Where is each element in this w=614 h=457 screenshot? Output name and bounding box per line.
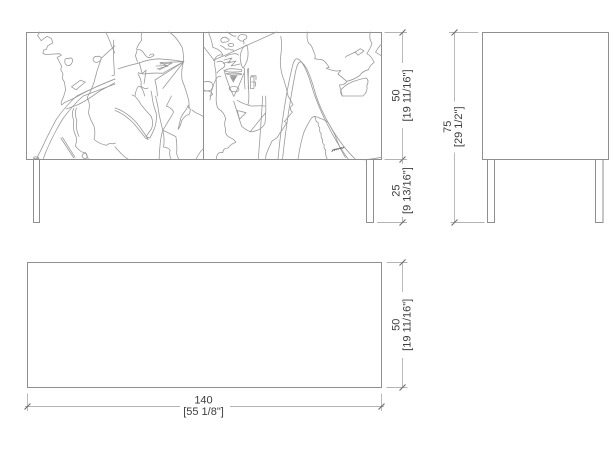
svg-text:[19 11/16"]: [19 11/16"] — [402, 299, 414, 351]
svg-text:140: 140 — [194, 394, 212, 406]
svg-text:[19 11/16"]: [19 11/16"] — [402, 69, 414, 121]
svg-text:[55 1/8"]: [55 1/8"] — [183, 406, 224, 418]
svg-text:[9 13/16"]: [9 13/16"] — [402, 167, 414, 214]
svg-text:[29 1/2"]: [29 1/2"] — [453, 106, 465, 147]
